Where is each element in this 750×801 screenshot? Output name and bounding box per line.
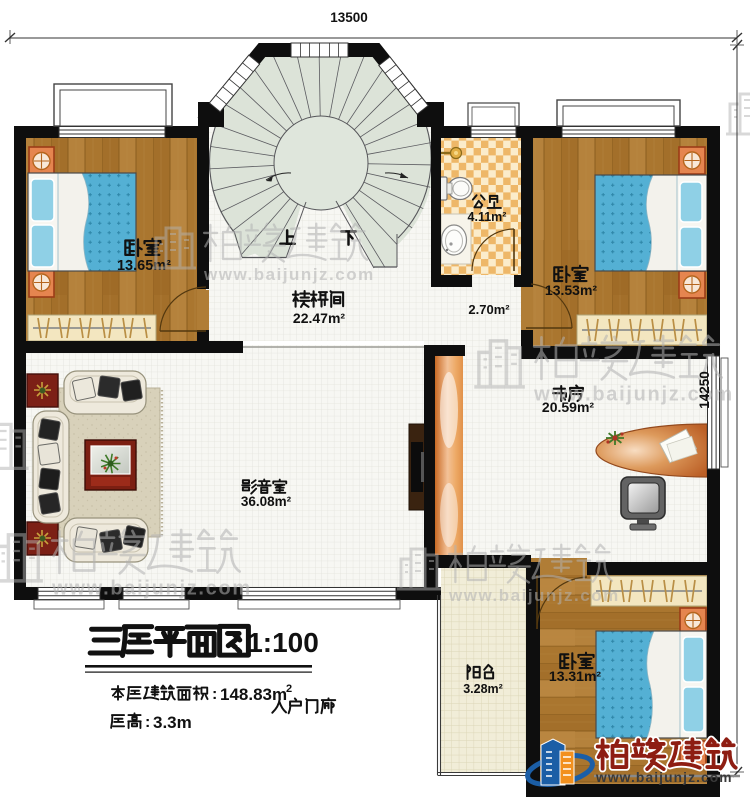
svg-text:13500: 13500 <box>330 10 368 25</box>
svg-text:www.baijunjz.com: www.baijunjz.com <box>203 265 375 284</box>
svg-text:13.65m²: 13.65m² <box>117 258 171 274</box>
svg-text:1:100: 1:100 <box>247 627 319 658</box>
svg-text:14250: 14250 <box>697 371 712 409</box>
svg-text:www.baijunjz.com: www.baijunjz.com <box>448 586 620 605</box>
svg-text:2.70m²: 2.70m² <box>468 302 510 317</box>
svg-text:www.baijunjz.com: www.baijunjz.com <box>51 578 252 600</box>
svg-text:4.11m²: 4.11m² <box>468 210 507 224</box>
svg-text:www.baijunjz.com: www.baijunjz.com <box>595 770 733 785</box>
svg-text:3.28m²: 3.28m² <box>463 682 503 696</box>
svg-text:148.83m: 148.83m <box>220 685 287 704</box>
svg-text:2: 2 <box>286 683 292 695</box>
svg-text:13.53m²: 13.53m² <box>545 282 597 298</box>
svg-text:36.08m²: 36.08m² <box>241 494 292 509</box>
svg-text:22.47m²: 22.47m² <box>293 310 345 326</box>
svg-text:3.3m: 3.3m <box>153 713 192 732</box>
svg-text::: : <box>145 714 150 731</box>
svg-text::: : <box>212 686 217 703</box>
svg-text:13.31m²: 13.31m² <box>549 668 601 684</box>
